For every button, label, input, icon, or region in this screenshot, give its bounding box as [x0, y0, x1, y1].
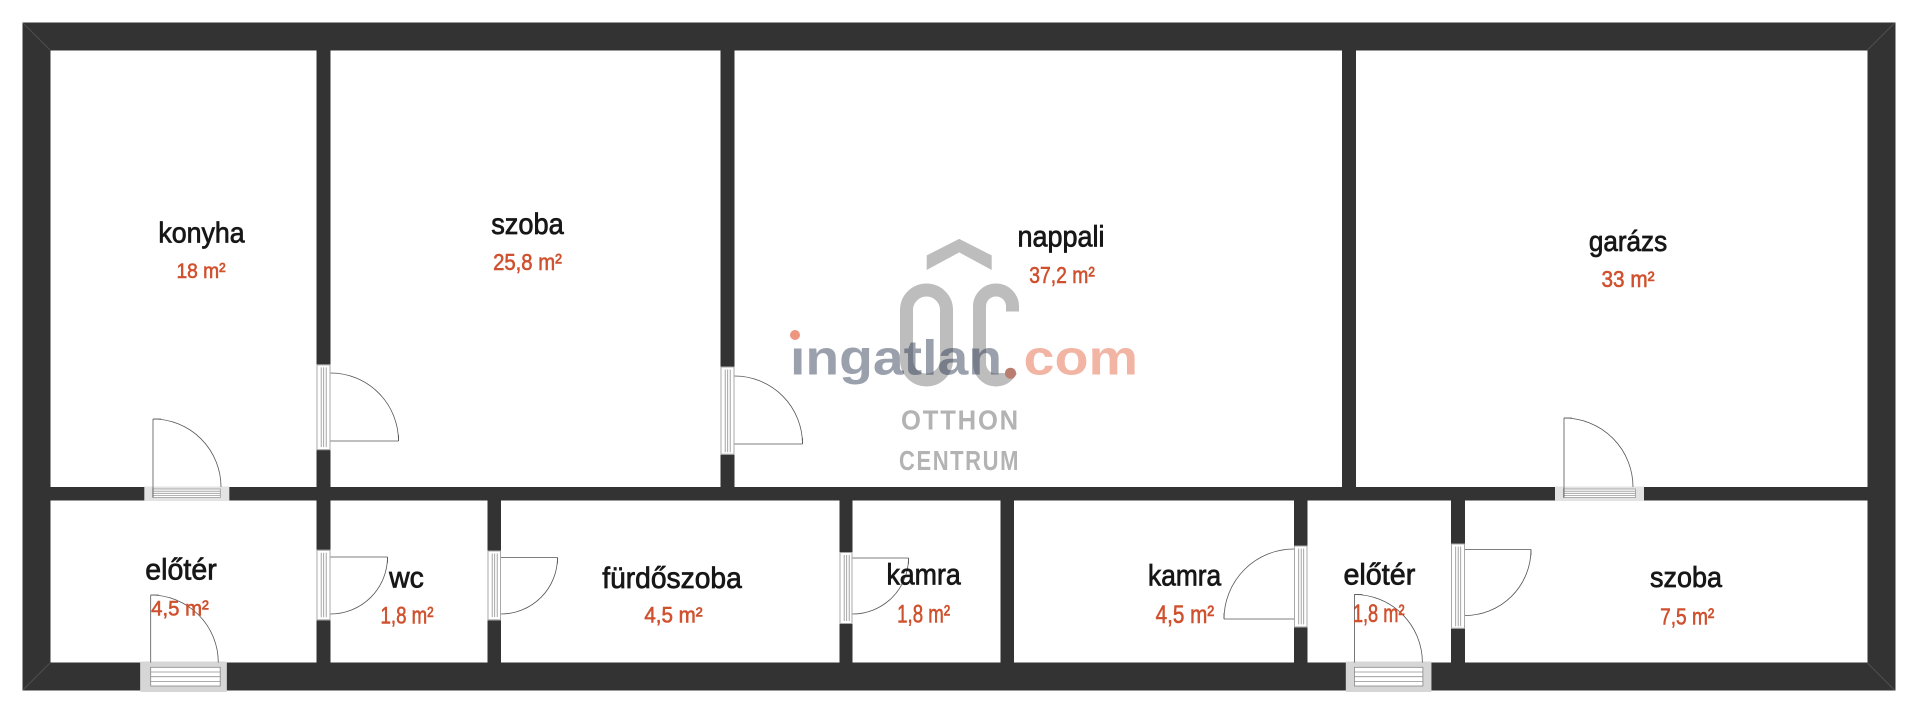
svg-text:4,5 m²: 4,5 m²	[644, 603, 702, 628]
svg-text:előtér: előtér	[145, 553, 216, 586]
svg-text:4,5 m²: 4,5 m²	[1156, 601, 1215, 629]
svg-text:CENTRUM: CENTRUM	[899, 445, 1020, 476]
svg-text:1,8 m²: 1,8 m²	[1353, 600, 1405, 628]
svg-text:kamra: kamra	[1148, 559, 1221, 592]
svg-text:37,2 m²: 37,2 m²	[1029, 262, 1095, 288]
svg-text:33 m²: 33 m²	[1602, 266, 1655, 292]
svg-text:1,8 m²: 1,8 m²	[381, 603, 434, 630]
svg-text:konyha: konyha	[158, 218, 245, 250]
svg-text:4,5 m²: 4,5 m²	[151, 596, 209, 621]
svg-text:ıngatlan: ıngatlan	[790, 330, 1002, 385]
svg-text:garázs: garázs	[1589, 226, 1667, 258]
svg-text:szoba: szoba	[1650, 562, 1723, 594]
svg-text:nappali: nappali	[1018, 221, 1105, 254]
svg-text:18 m²: 18 m²	[176, 259, 225, 283]
svg-text:wc: wc	[388, 561, 424, 594]
svg-text:kamra: kamra	[886, 559, 961, 592]
svg-text:com: com	[1024, 330, 1139, 385]
svg-text:szoba: szoba	[491, 208, 564, 241]
svg-text:fürdőszoba: fürdőszoba	[602, 562, 742, 595]
svg-text:OTTHON: OTTHON	[901, 405, 1020, 436]
svg-text:7,5 m²: 7,5 m²	[1660, 603, 1714, 629]
svg-text:25,8 m²: 25,8 m²	[493, 249, 562, 275]
svg-text:1,8 m²: 1,8 m²	[897, 600, 950, 628]
svg-text:előtér: előtér	[1343, 559, 1415, 592]
